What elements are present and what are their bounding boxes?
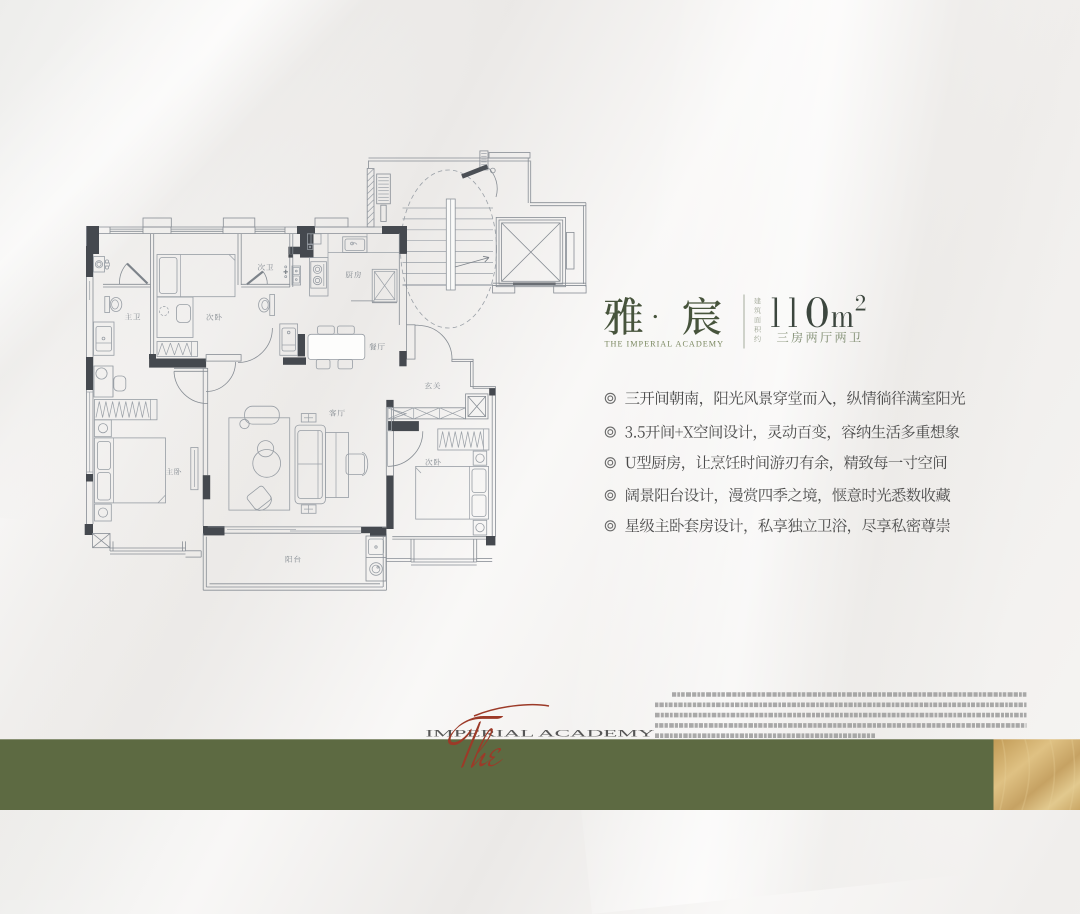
svg-text:THE IMPERIAL ACADEMY: THE IMPERIAL ACADEMY (605, 340, 724, 349)
svg-text:IMPERIAL ACADEMY: IMPERIAL ACADEMY (426, 730, 656, 740)
